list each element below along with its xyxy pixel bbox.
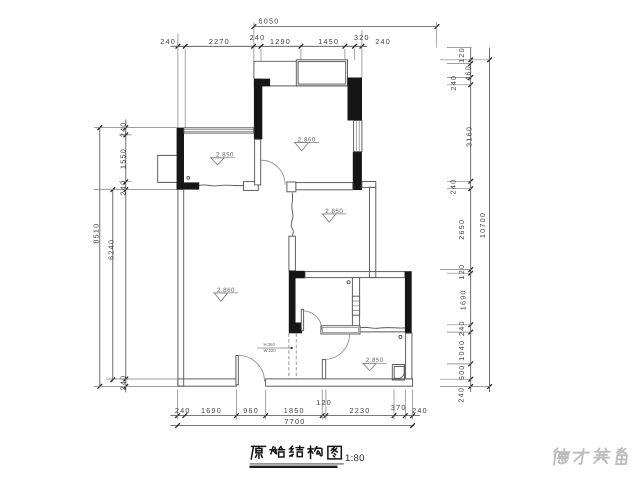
svg-text:1690: 1690 bbox=[459, 289, 468, 310]
svg-text:240: 240 bbox=[118, 375, 127, 391]
svg-text:6240: 6240 bbox=[106, 239, 115, 260]
svg-text:1040: 1040 bbox=[457, 340, 466, 361]
svg-text:240: 240 bbox=[457, 320, 466, 336]
svg-text:1690: 1690 bbox=[201, 406, 222, 415]
svg-text:1:80: 1:80 bbox=[345, 453, 365, 464]
svg-text:10700: 10700 bbox=[478, 212, 487, 238]
svg-text:3160: 3160 bbox=[465, 126, 474, 147]
svg-text:240: 240 bbox=[160, 37, 176, 46]
svg-text:H.360: H.360 bbox=[264, 342, 276, 347]
svg-text:240: 240 bbox=[412, 406, 428, 415]
svg-text:1850: 1850 bbox=[284, 406, 305, 415]
svg-text:7700: 7700 bbox=[285, 417, 306, 426]
svg-text:120: 120 bbox=[457, 47, 466, 63]
svg-text:240: 240 bbox=[449, 75, 458, 91]
svg-text:370: 370 bbox=[391, 403, 407, 412]
svg-text:460: 460 bbox=[464, 65, 473, 81]
svg-text:240: 240 bbox=[375, 37, 391, 46]
svg-text:240: 240 bbox=[449, 179, 458, 195]
svg-text:120: 120 bbox=[457, 264, 466, 280]
svg-text:2230: 2230 bbox=[350, 406, 371, 415]
svg-text:960: 960 bbox=[243, 406, 259, 415]
svg-text:8510: 8510 bbox=[92, 223, 101, 244]
svg-text:W.220: W.220 bbox=[264, 348, 277, 353]
svg-text:1550: 1550 bbox=[118, 148, 127, 169]
svg-text:2650: 2650 bbox=[457, 219, 466, 240]
svg-text:2270: 2270 bbox=[209, 37, 230, 46]
svg-text:240: 240 bbox=[457, 387, 466, 403]
svg-text:320: 320 bbox=[354, 33, 370, 42]
svg-text:1290: 1290 bbox=[270, 37, 291, 46]
svg-text:6050: 6050 bbox=[259, 17, 280, 26]
svg-text:120: 120 bbox=[316, 398, 332, 407]
svg-text:240: 240 bbox=[118, 180, 127, 196]
svg-text:240: 240 bbox=[118, 121, 127, 137]
svg-text:240: 240 bbox=[175, 406, 191, 415]
svg-text:240: 240 bbox=[250, 33, 266, 42]
svg-text:1450: 1450 bbox=[318, 37, 339, 46]
svg-text:500: 500 bbox=[457, 364, 466, 380]
